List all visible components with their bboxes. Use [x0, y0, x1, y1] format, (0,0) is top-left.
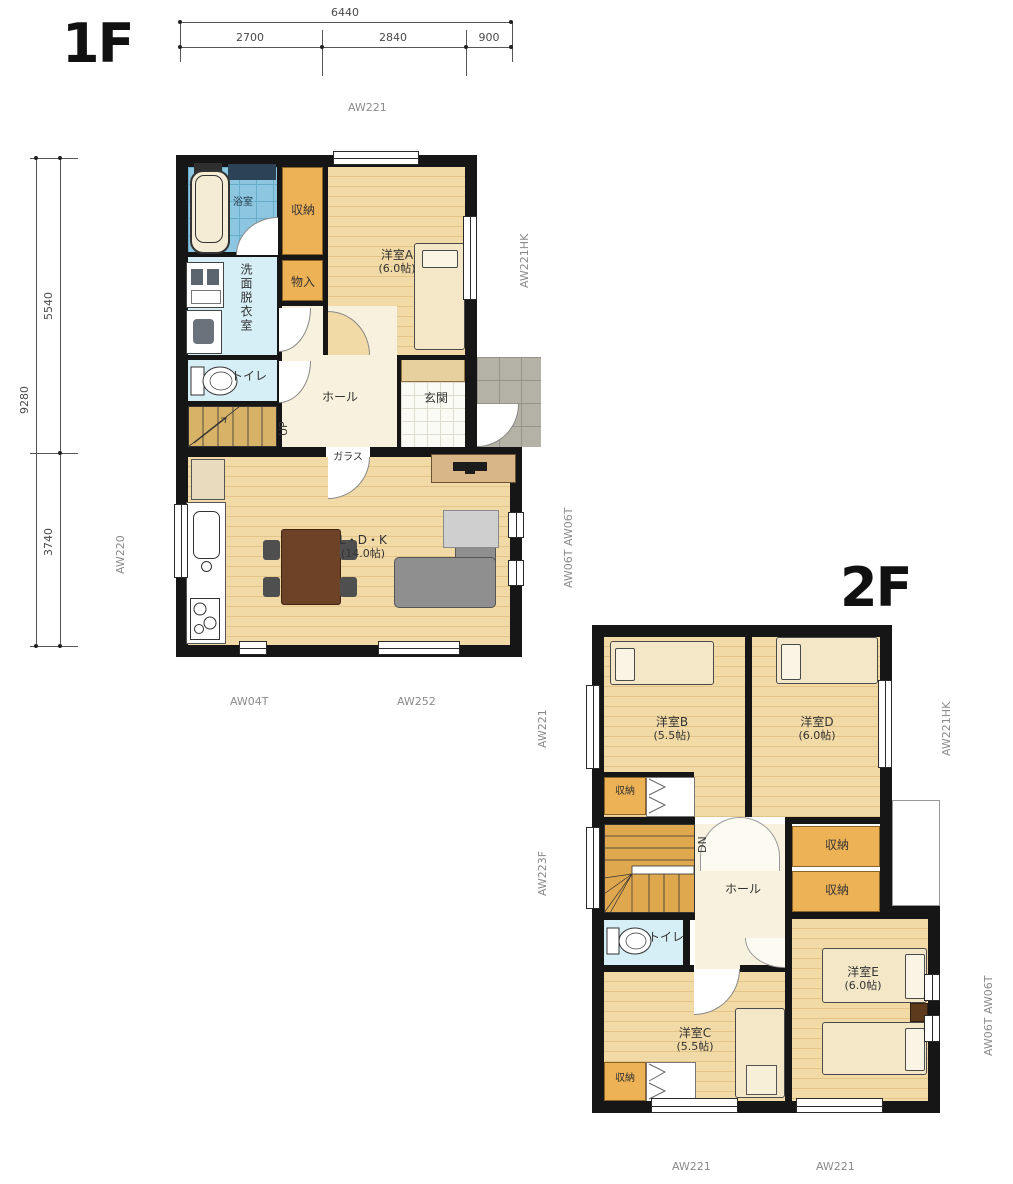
window-right-ldk-2	[508, 560, 524, 586]
desk-chair	[746, 1065, 777, 1095]
dim-dot	[34, 644, 38, 648]
dim-dot	[178, 20, 182, 24]
wall-interior	[785, 919, 792, 1113]
window-bottom-kitchen	[239, 641, 267, 655]
dim-w1: 2700	[225, 31, 275, 44]
wall	[880, 625, 892, 918]
wall-interior	[188, 401, 280, 406]
room-e-name: 洋室E	[847, 965, 879, 979]
label-room-d: 洋室D(6.0帖)	[790, 716, 844, 742]
label-washroom: 洗面脱衣室	[238, 263, 255, 353]
room-a-name: 洋室A	[381, 248, 413, 262]
room-e-size: (6.0帖)	[836, 980, 890, 993]
label-closet-r1: 収納	[818, 839, 856, 853]
wall-interior	[785, 817, 892, 824]
label-ldk: L・D・K(14.0帖)	[336, 534, 390, 560]
room-b-name: 洋室B	[656, 715, 688, 729]
window-label-aw221-left: AW221	[536, 694, 549, 748]
label-closet-r2: 収納	[818, 884, 856, 898]
chair-icon	[340, 577, 357, 597]
dim-dot	[464, 45, 468, 49]
label-dn: DN	[697, 830, 710, 860]
room-b-size: (5.5帖)	[645, 730, 699, 743]
floor-title-2f: 2F	[840, 556, 910, 619]
vanity-basin	[207, 269, 219, 285]
label-closet-c: 収納	[606, 1073, 644, 1085]
window-label-aw220: AW220	[114, 514, 127, 574]
label-monoire: 物入	[286, 276, 320, 290]
vanity-icon	[186, 262, 224, 308]
dim-dot	[509, 45, 513, 49]
window-right-room-e-1	[924, 974, 940, 1001]
chair-icon	[263, 540, 280, 560]
window-bottom-room-c	[651, 1098, 738, 1113]
window-label-aw04t: AW04T	[230, 695, 269, 708]
room-d-name: 洋室D	[800, 715, 833, 729]
pillow	[422, 250, 458, 268]
bed-icon-room-b	[610, 641, 714, 685]
dim-w3: 900	[470, 31, 508, 44]
dim-total-height: 9280	[18, 372, 31, 428]
label-room-a: 洋室A(6.0帖)	[372, 249, 422, 275]
vanity-drawer	[191, 290, 221, 304]
refrigerator-icon	[191, 459, 225, 500]
dim-dot	[320, 45, 324, 49]
window-bottom-room-e	[796, 1098, 883, 1113]
room-a-size: (6.0帖)	[372, 263, 422, 276]
tv-stand	[465, 471, 475, 474]
dim-h1: 5540	[42, 278, 55, 334]
tv-board	[431, 454, 516, 483]
floor-plan-sheet: 1F 6440 2700 2840 900 AW221 9280 5540 37…	[0, 0, 1013, 1184]
wall-interior	[592, 965, 694, 972]
wall	[592, 625, 892, 637]
ldk-size: (14.0帖)	[336, 548, 390, 561]
low-table-icon	[443, 510, 499, 548]
porch-roof-outline	[892, 800, 940, 906]
room-c-name: 洋室C	[679, 1026, 711, 1040]
wall	[465, 155, 477, 457]
chair-icon	[263, 577, 280, 597]
dining-table-icon	[281, 529, 341, 605]
label-room-b: 洋室B(5.5帖)	[645, 716, 699, 742]
label-closet-b: 収納	[606, 786, 644, 798]
bathtub-inner	[195, 175, 223, 243]
dim-tick	[512, 22, 513, 62]
label-hall-2f: ホール	[718, 883, 768, 897]
label-glass-door: ガラス	[328, 452, 368, 464]
desk-icon-room-c	[735, 1008, 785, 1098]
dim-dot	[178, 45, 182, 49]
stove-icon	[190, 598, 220, 640]
label-bath: 浴室	[226, 197, 260, 209]
room-c-size: (5.5帖)	[668, 1041, 722, 1054]
wall-interior	[745, 637, 752, 817]
wall-interior	[592, 817, 695, 824]
dim-line-sub-height	[60, 158, 61, 647]
label-toilet-2f: トイレ	[646, 931, 686, 945]
label-hall-1f: ホール	[315, 391, 365, 405]
washing-machine-icon	[186, 310, 222, 354]
wall-interior	[323, 167, 328, 313]
window-right-room-e-2	[924, 1015, 940, 1042]
dim-dot	[58, 644, 62, 648]
window-label-aw221-bottom-1: AW221	[672, 1160, 711, 1173]
window-label-aw06t-1f: AW06T AW06T	[562, 492, 575, 588]
dim-h2: 3740	[42, 514, 55, 570]
window-label-aw06t-2f: AW06T AW06T	[982, 958, 995, 1056]
label-up: UP	[278, 414, 291, 444]
window-label-aw221-top: AW221	[348, 101, 387, 114]
wall	[176, 645, 522, 657]
wall-interior	[604, 772, 694, 777]
pillow	[905, 954, 925, 999]
room-d-size: (6.0帖)	[790, 730, 844, 743]
wall-interior	[282, 301, 323, 306]
dim-dot	[34, 156, 38, 160]
window-top-room-a	[333, 151, 419, 165]
window-left-stairs	[586, 827, 600, 909]
window-right-room-d	[878, 680, 892, 768]
wall-interior	[785, 817, 792, 919]
label-genkan: 玄関	[416, 392, 456, 406]
genkan-step	[401, 359, 465, 382]
label-closet-1f: 収納	[286, 204, 320, 218]
dim-dot	[58, 451, 62, 455]
window-label-aw223f: AW223F	[536, 834, 549, 896]
dim-total-width: 6440	[315, 6, 375, 19]
window-label-aw221hk-1f: AW221HK	[518, 222, 531, 288]
wall-interior	[397, 360, 401, 447]
window-label-aw252: AW252	[397, 695, 436, 708]
window-label-aw221-bottom-2: AW221	[816, 1160, 855, 1173]
window-right-ldk-1	[508, 512, 524, 538]
bath-counter	[228, 164, 276, 180]
window-right-room-a	[463, 216, 477, 300]
bed-icon-room-d	[776, 637, 878, 684]
stairs-1f	[188, 406, 277, 447]
wall-interior	[785, 912, 940, 919]
label-room-e: 洋室E(6.0帖)	[836, 966, 890, 992]
tv-icon	[453, 462, 487, 471]
pillow	[781, 644, 801, 680]
wall-interior	[282, 255, 323, 260]
floor-title-1f: 1F	[62, 12, 132, 75]
window-left-room-b	[586, 685, 600, 769]
wall-interior	[188, 355, 280, 360]
dim-line-sub-width	[180, 47, 512, 48]
closet-c-door	[646, 1062, 696, 1103]
dim-tick	[30, 453, 78, 454]
sofa-icon	[394, 557, 496, 608]
wall	[928, 906, 940, 1113]
dim-tick	[322, 30, 323, 76]
ldk-name: L・D・K	[339, 533, 387, 547]
bathtub-icon	[190, 170, 230, 254]
label-toilet-1f: トイレ	[229, 370, 269, 384]
dim-tick	[466, 30, 467, 76]
window-label-aw221hk-2f: AW221HK	[940, 688, 953, 756]
washer-drum	[193, 319, 214, 344]
dim-tick	[180, 22, 181, 62]
wall-interior	[397, 355, 465, 360]
dim-dot	[509, 20, 513, 24]
faucet-icon	[201, 561, 212, 572]
window-bottom-ldk	[378, 641, 460, 655]
window-left-ldk	[174, 504, 188, 578]
wall-interior	[592, 913, 695, 920]
vanity-basin	[191, 269, 203, 285]
dim-w2: 2840	[368, 31, 418, 44]
kitchen-sink-icon	[193, 511, 220, 559]
dim-dot	[58, 156, 62, 160]
bed-icon-room-e-2	[822, 1022, 927, 1075]
wall-interior	[188, 447, 326, 457]
closet-b-door	[646, 777, 695, 817]
stairs-2f	[604, 824, 695, 913]
dim-line-total-height	[36, 158, 37, 647]
wall	[592, 1101, 940, 1113]
dim-line-total-width	[180, 22, 512, 23]
pillow	[905, 1028, 925, 1071]
pillow	[615, 648, 635, 681]
label-room-c: 洋室C(5.5帖)	[668, 1027, 722, 1053]
